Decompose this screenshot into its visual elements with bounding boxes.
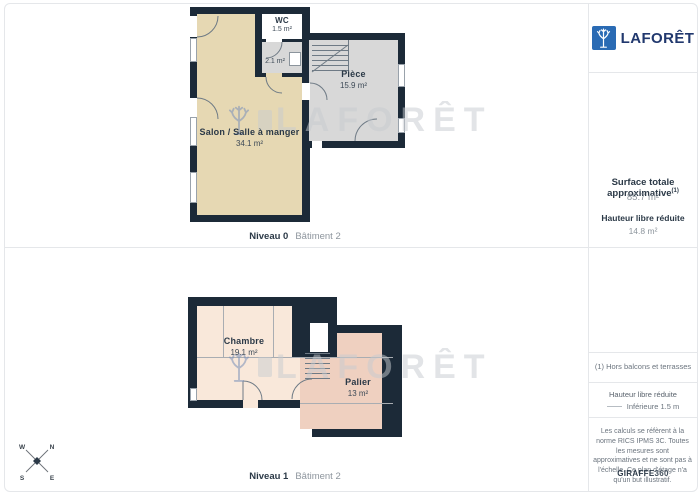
reduced-height-title: Hauteur libre réduite xyxy=(589,213,697,223)
caption-niveau-1: Niveau 1Bâtiment 2 xyxy=(150,471,440,482)
sidebar-section-divider xyxy=(589,382,697,383)
room-label-palier: Palier 13 m² xyxy=(318,377,398,398)
compass-icon: W N S E xyxy=(14,438,60,484)
compass-w: W xyxy=(19,444,26,451)
laforet-logo-square xyxy=(592,26,616,50)
legend-label: Inférieure 1.5 m xyxy=(627,402,680,411)
sidebar-section-divider xyxy=(589,352,697,353)
floorplan-niveau-1: LAFORÊT Chambre 19.1 m² Palier 13 m² xyxy=(188,293,407,443)
compass-e: E xyxy=(50,475,55,482)
room-label-piece: Pièce 15.9 m² xyxy=(309,69,398,90)
laforet-logo-text: LAFORÊT xyxy=(621,30,695,47)
footnote: (1) Hors balcons et terrasses xyxy=(589,362,697,371)
sidebar-section-divider xyxy=(589,72,697,73)
floorplan-niveau-0: LAFORÊT WC 1.5 m² 2.1 m² Pièce 15.9 m² S… xyxy=(190,5,405,250)
giraffe360-credit: GIRAFFE360 xyxy=(589,469,697,478)
laforet-tree-icon xyxy=(595,28,612,48)
surface-value: 85.7 m² xyxy=(589,192,697,203)
reduced-height-value: 14.8 m² xyxy=(589,226,697,236)
room-label-hall: 2.1 m² xyxy=(262,57,288,65)
laforet-logo: LAFORÊT xyxy=(589,26,697,50)
legend-row: Inférieure 1.5 m xyxy=(589,402,697,411)
sidebar-section-divider xyxy=(589,417,697,418)
compass-s: S xyxy=(20,475,25,482)
door-arcs xyxy=(188,293,407,443)
caption-niveau-0: Niveau 0Bâtiment 2 xyxy=(150,231,440,242)
room-label-salon: Salon / Salle à manger 34.1 m² xyxy=(197,127,302,148)
room-label-wc: WC 1.5 m² xyxy=(262,16,302,33)
room-label-chambre: Chambre 19.1 m² xyxy=(197,336,291,357)
legend-title: Hauteur libre réduite xyxy=(589,390,697,399)
compass-n: N xyxy=(50,444,55,451)
legend-line-sample xyxy=(607,406,622,407)
